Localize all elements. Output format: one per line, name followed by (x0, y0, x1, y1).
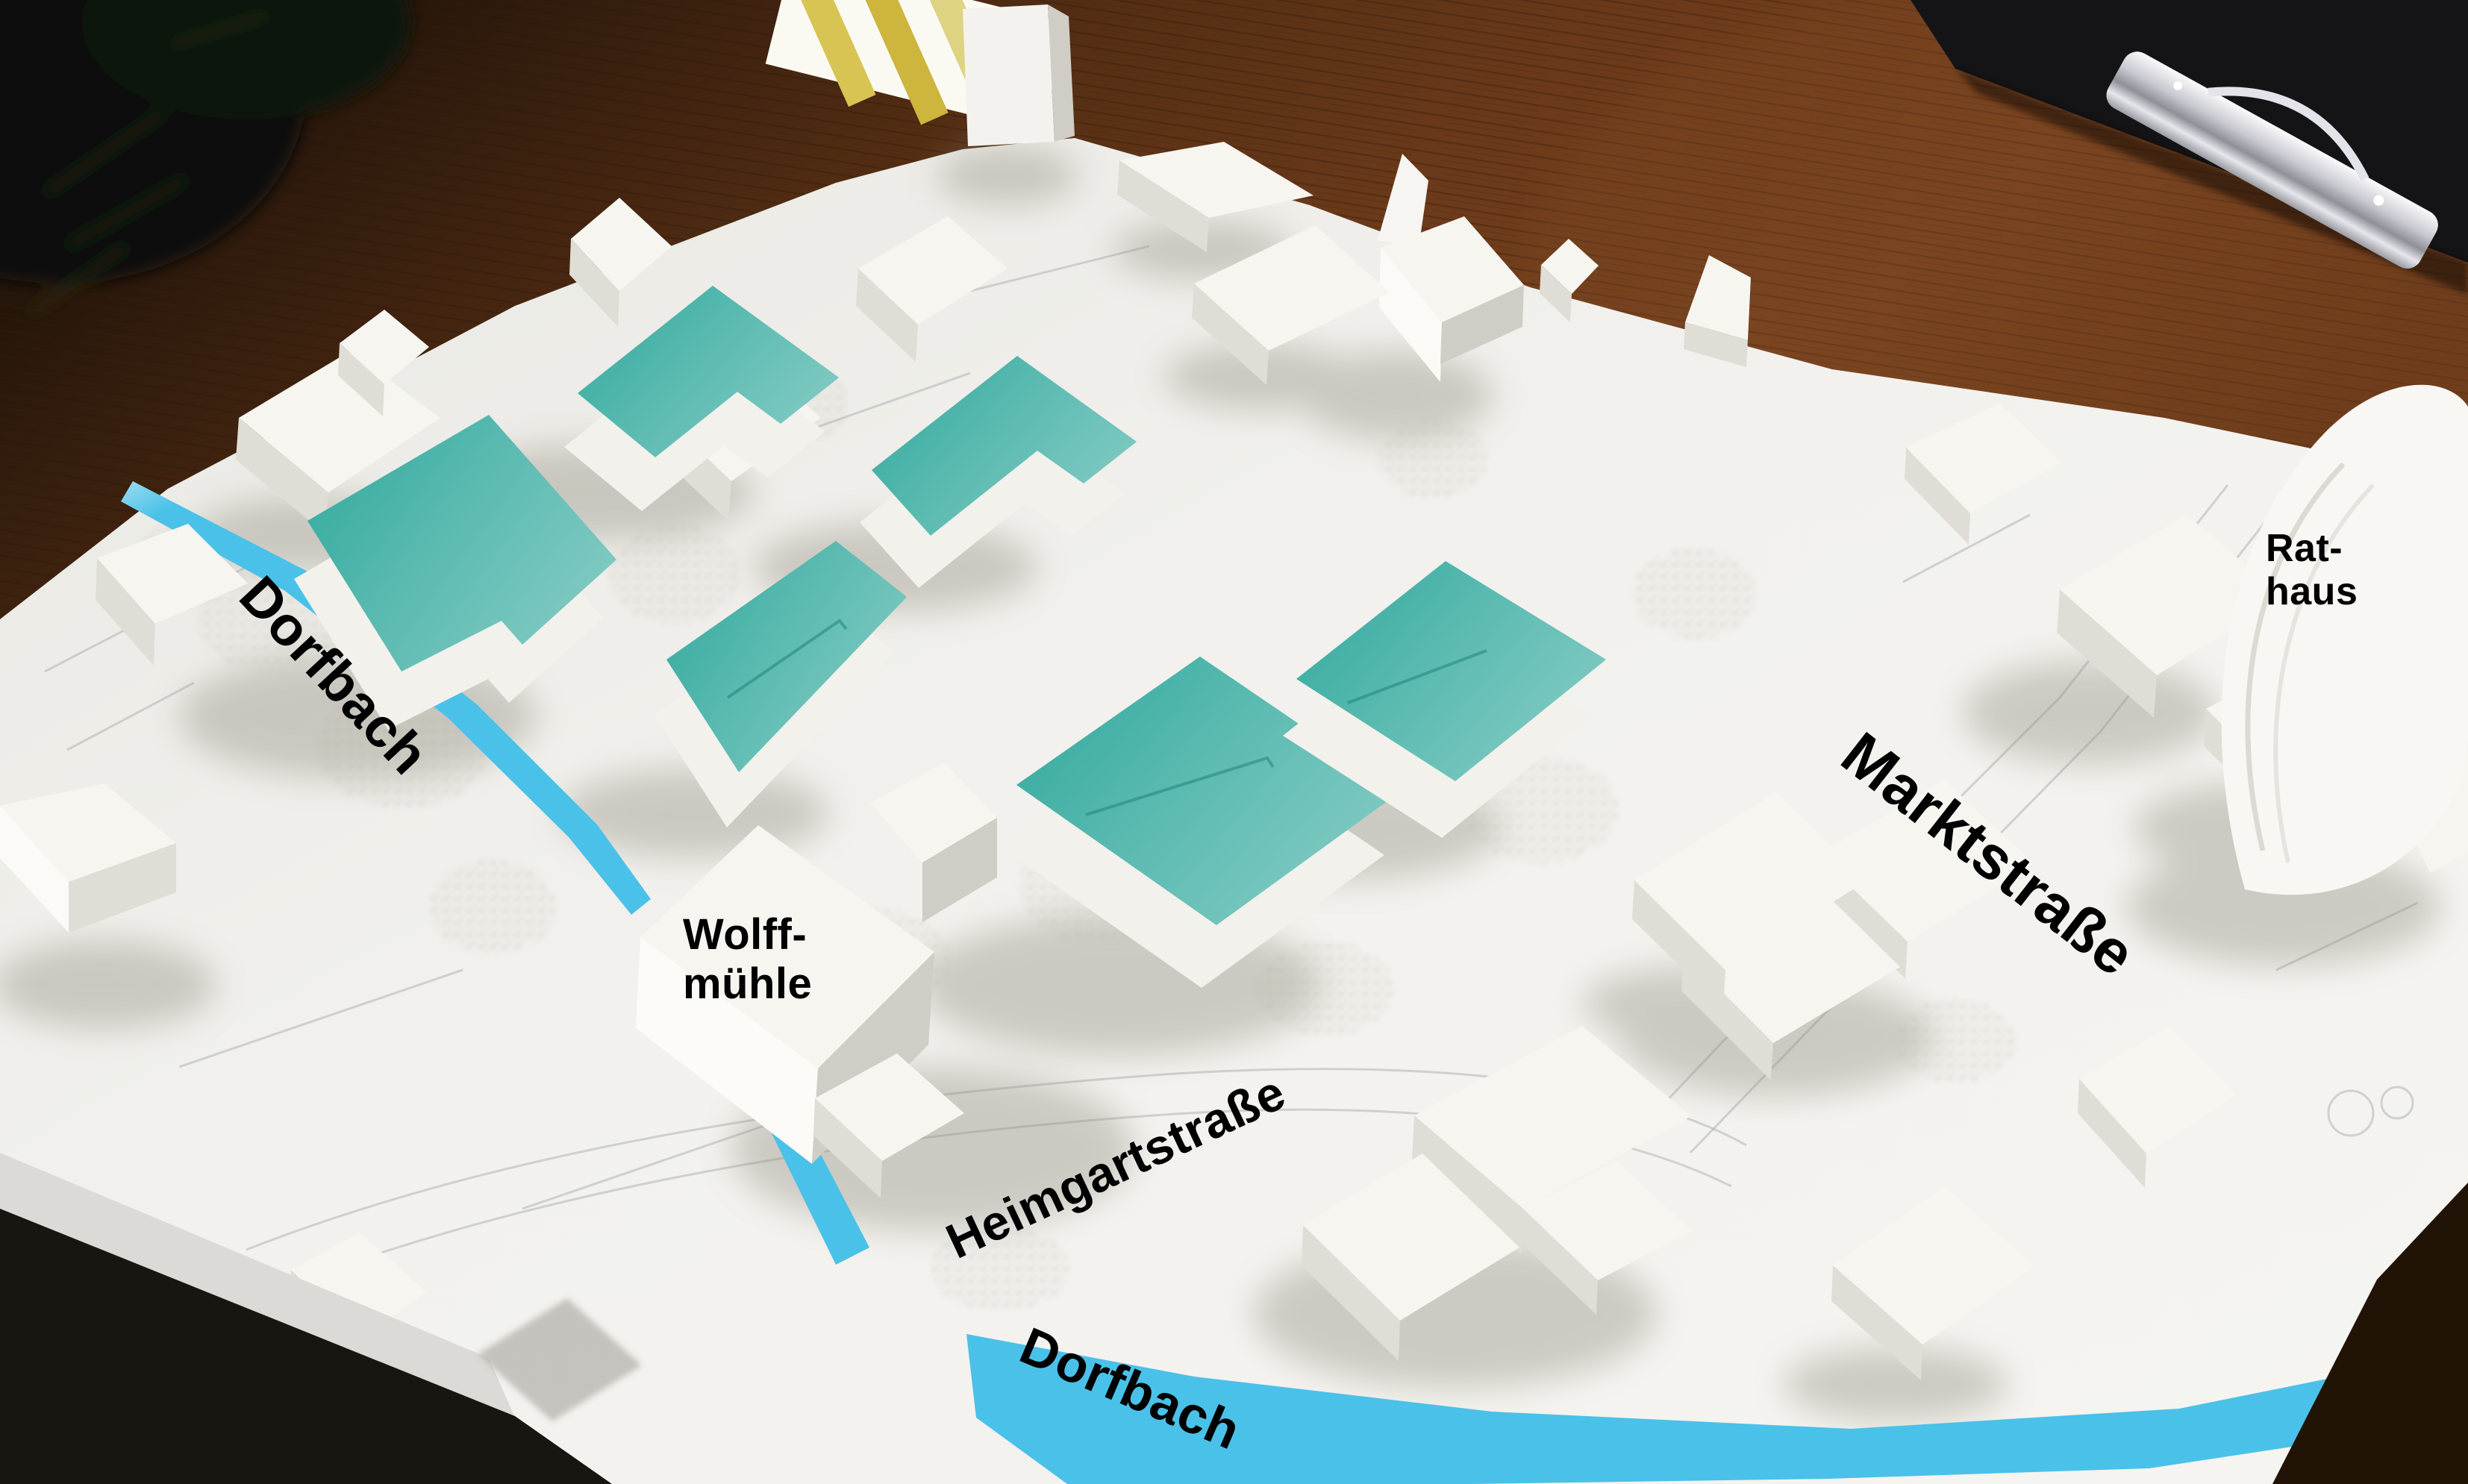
tree-cluster (1633, 548, 1755, 638)
tree-cluster (1256, 942, 1393, 1035)
label-wolffmuehle: Wolff- mühle (683, 910, 812, 1008)
tree-cluster (1379, 420, 1487, 498)
tree-cluster (429, 860, 556, 953)
tower-building (963, 4, 1075, 146)
label-rathaus-line2: haus (2266, 570, 2358, 613)
tree-cluster (610, 525, 741, 624)
tree-cluster (1894, 999, 2016, 1083)
scene-canvas: Dorfbach Wolff- mühle Heimgartstraße Mar… (0, 0, 2468, 1484)
tower-front (963, 4, 1055, 146)
label-rathaus-line1: Rat- (2266, 527, 2343, 570)
label-wolffmuehle-line1: Wolff- (683, 910, 807, 959)
label-wolffmuehle-line2: mühle (683, 959, 812, 1008)
architectural-model-photo: Dorfbach Wolff- mühle Heimgartstraße Mar… (0, 0, 2468, 1484)
